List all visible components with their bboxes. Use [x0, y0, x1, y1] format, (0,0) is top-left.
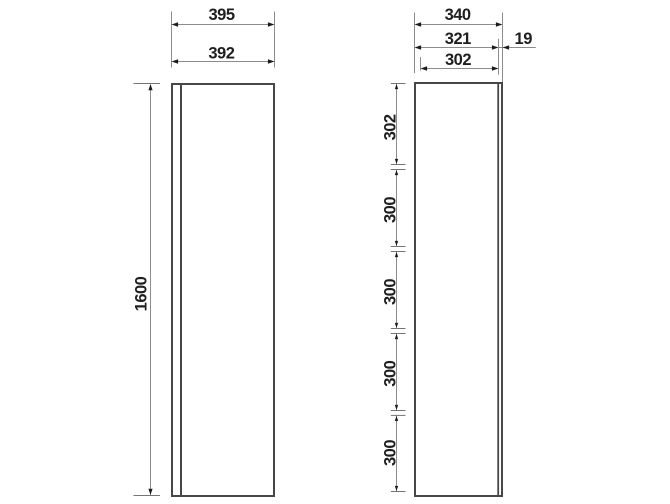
svg-text:1600: 1600 — [133, 276, 151, 311]
svg-text:300: 300 — [382, 360, 400, 386]
svg-text:302: 302 — [445, 51, 471, 69]
svg-text:392: 392 — [208, 45, 234, 63]
svg-text:321: 321 — [445, 30, 471, 48]
svg-text:340: 340 — [445, 6, 471, 24]
svg-text:302: 302 — [382, 114, 400, 140]
svg-text:395: 395 — [208, 6, 234, 24]
svg-text:19: 19 — [515, 30, 533, 48]
svg-text:300: 300 — [382, 279, 400, 305]
svg-text:300: 300 — [382, 197, 400, 223]
svg-text:300: 300 — [382, 440, 400, 466]
